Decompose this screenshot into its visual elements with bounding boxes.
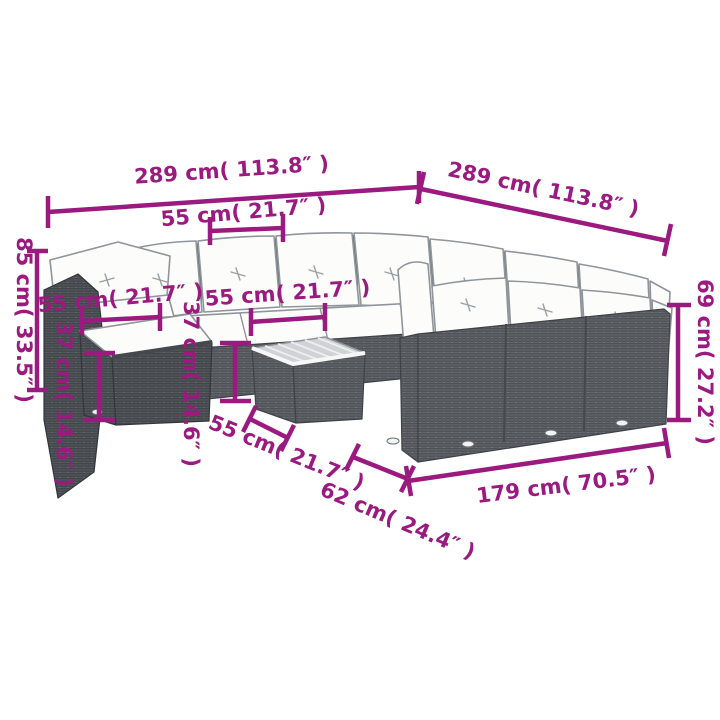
dim-label: 289 cm( 113.8″ ) [446,157,642,221]
dimension-diagram-svg: 289 cm( 113.8″ ) 289 cm( 113.8″ ) 55 cm(… [0,0,720,720]
dim-backrest-height: 69 cm( 27.2″ ) [667,279,717,445]
dim-label: 85 cm( 33.5″ ) [12,237,36,403]
dim-label: 55 cm( 21.7″ ) [205,410,368,494]
dim-label: 37 cm( 14.6″ ) [52,321,76,487]
right-base-left-face [400,334,418,462]
dim-label: 37 cm( 14.6″ ) [179,301,203,467]
dim-total-height: 85 cm( 33.5″ ) [12,237,48,403]
product-dimension-image: 289 cm( 113.8″ ) 289 cm( 113.8″ ) 55 cm(… [0,0,720,720]
right-base-front-face [418,309,670,462]
dim-label: 69 cm( 27.2″ ) [693,279,717,445]
dim-label: 62 cm( 24.4″ ) [317,477,479,564]
sofa-foot [462,441,474,447]
sofa-foot [387,438,399,444]
dim-label: 289 cm( 113.8″ ) [133,151,329,189]
sofa-foot [616,420,628,426]
coffee-table [252,337,365,423]
sofa-foot [545,430,557,436]
